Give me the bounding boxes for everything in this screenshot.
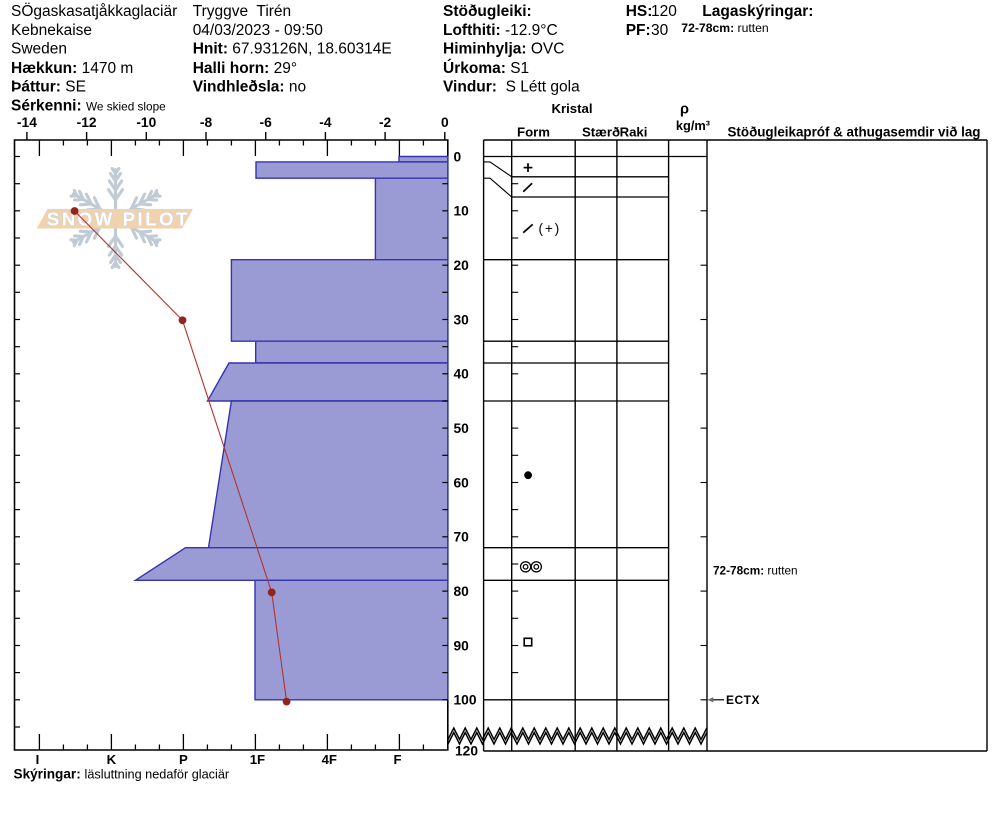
svg-text:-10: -10 <box>136 115 156 130</box>
svg-text:-12: -12 <box>77 115 97 130</box>
svg-text:Þáttur: SE: Þáttur: SE <box>11 78 86 95</box>
svg-text:ECTX: ECTX <box>726 693 760 707</box>
svg-text:Lofthiti: -12.9°C: Lofthiti: -12.9°C <box>443 22 558 39</box>
svg-text:Úrkoma: S1: Úrkoma: S1 <box>443 59 529 77</box>
svg-text:80: 80 <box>454 584 470 599</box>
svg-text:-2: -2 <box>379 115 392 130</box>
svg-text:70: 70 <box>454 530 470 545</box>
svg-text:ρ: ρ <box>680 102 689 118</box>
svg-text:0: 0 <box>454 149 462 164</box>
svg-text:P: P <box>179 752 188 767</box>
svg-text:Vindur: S Létt gola: Vindur: S Létt gola <box>443 78 580 95</box>
svg-text:F: F <box>393 752 401 767</box>
svg-text:I: I <box>36 752 40 767</box>
svg-text:Stærð: Stærð <box>582 124 620 139</box>
svg-text:-8: -8 <box>200 115 213 130</box>
svg-text:0: 0 <box>441 115 449 130</box>
svg-text:-4: -4 <box>319 115 332 130</box>
svg-text:Stöðugleiki:: Stöðugleiki: <box>443 3 532 20</box>
svg-text:-6: -6 <box>260 115 273 130</box>
svg-text:HS:120: HS:120 <box>626 3 678 20</box>
svg-text:04/03/2023 - 09:50: 04/03/2023 - 09:50 <box>193 22 324 39</box>
svg-text:Hækkun: 1470 m: Hækkun: 1470 m <box>11 60 133 77</box>
svg-text:(+): (+) <box>539 221 562 236</box>
svg-text:120: 120 <box>455 743 478 758</box>
svg-text:50: 50 <box>454 421 470 436</box>
svg-text:4F: 4F <box>322 752 337 767</box>
svg-text:Himinhylja: OVC: Himinhylja: OVC <box>443 41 564 58</box>
svg-text:40: 40 <box>454 367 470 382</box>
svg-text:20: 20 <box>454 258 470 273</box>
svg-text:10: 10 <box>454 204 470 219</box>
svg-text:PF:30: PF:30 <box>626 22 669 39</box>
svg-text:K: K <box>107 752 117 767</box>
svg-text:-14: -14 <box>17 115 37 130</box>
svg-text:Tryggve Tirén: Tryggve Tirén <box>193 3 292 20</box>
svg-text:Skýringar: läsluttning nedaför: Skýringar: läsluttning nedaför glaciär <box>14 767 230 782</box>
svg-text:Form: Form <box>517 124 550 139</box>
svg-text:100: 100 <box>454 693 477 708</box>
svg-text:SÖgaskasatjåkkaglaciär: SÖgaskasatjåkkaglaciär <box>11 2 177 20</box>
svg-text:Lagaskýringar:: Lagaskýringar: <box>702 3 813 20</box>
svg-text:60: 60 <box>454 475 470 490</box>
svg-text:Halli horn: 29°: Halli horn: 29° <box>193 60 297 77</box>
svg-text:SNOW PILOT: SNOW PILOT <box>47 209 190 230</box>
svg-text:Raki: Raki <box>620 124 648 139</box>
svg-text:Vindhleðsla: no: Vindhleðsla: no <box>193 78 306 95</box>
svg-text:kg/m³: kg/m³ <box>676 118 710 133</box>
svg-text:Sérkenni: We skied slope: Sérkenni: We skied slope <box>11 98 166 115</box>
svg-text:Hnit: 67.93126N, 18.60314E: Hnit: 67.93126N, 18.60314E <box>193 41 392 58</box>
svg-text:Kristal: Kristal <box>551 101 592 116</box>
svg-text:72-78cm: rutten: 72-78cm: rutten <box>713 563 798 577</box>
svg-text:Kebnekaise: Kebnekaise <box>11 22 92 39</box>
svg-text:1F: 1F <box>250 752 265 767</box>
svg-text:Stöðugleikapróf & athugasemdir: Stöðugleikapróf & athugasemdir við lag <box>728 124 981 139</box>
svg-text:90: 90 <box>454 638 470 653</box>
svg-text:30: 30 <box>454 312 470 327</box>
svg-text:72-78cm: rutten: 72-78cm: rutten <box>681 21 768 35</box>
svg-text:Sweden: Sweden <box>11 41 67 58</box>
